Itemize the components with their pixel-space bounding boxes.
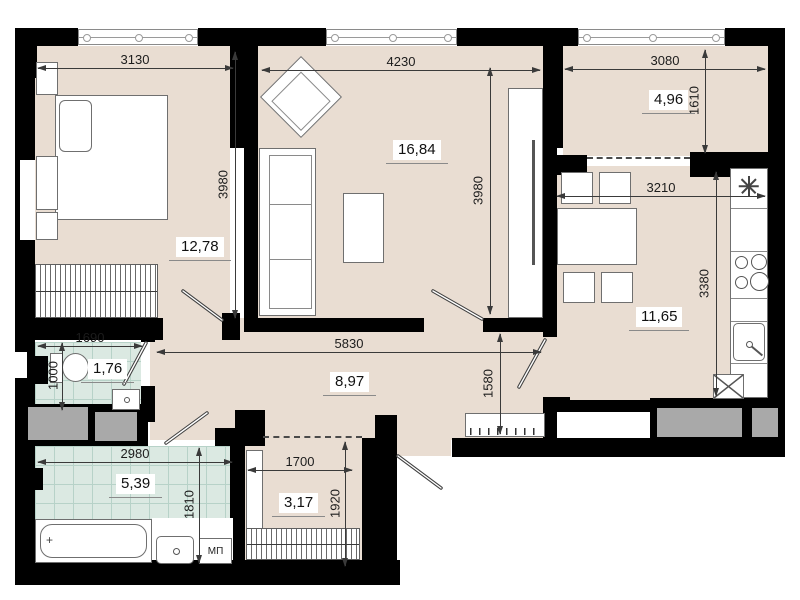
dim-line-bedroom-width	[38, 68, 233, 69]
dim-wc-depth: 1000	[46, 346, 61, 406]
dim-line-balcony-depth	[705, 50, 706, 153]
dim-living-depth: 3980	[471, 161, 486, 221]
bedroom-area-label: 12,78	[176, 237, 224, 257]
dim-entry-hall-width: 1700	[270, 454, 330, 469]
dim-line-bedroom-depth	[235, 52, 236, 318]
dim-line-living-width	[262, 70, 540, 71]
dim-line-wc-depth	[62, 343, 63, 410]
dim-bedroom-depth: 3980	[216, 155, 231, 215]
dim-line-bathroom-width	[38, 462, 232, 463]
floor-plan: + МП	[0, 0, 800, 600]
dim-hallway-width: 5830	[319, 336, 379, 351]
dim-line-living-depth	[490, 68, 491, 314]
dim-wc-width: 1690	[60, 330, 120, 345]
balcony-area-label: 4,96	[649, 90, 688, 110]
kitchen-area-label: 11,65	[636, 307, 682, 327]
wc-area-label: 1,76	[88, 359, 127, 379]
dim-bathroom-depth: 1810	[182, 475, 197, 535]
dim-line-bathroom-depth	[199, 448, 200, 563]
dim-line-entry-hall-depth	[345, 442, 346, 566]
dim-entry-hall-depth: 1920	[328, 474, 343, 534]
entry-hall-area-label: 3,17	[279, 493, 318, 513]
bathroom-area-label: 5,39	[116, 474, 155, 494]
dim-bathroom-width: 2980	[105, 446, 165, 461]
dim-line-kitchen-width	[557, 196, 765, 197]
dim-kitchen-depth: 3380	[697, 254, 712, 314]
dim-line-hallway-depth	[500, 334, 501, 434]
living-room-area-label: 16,84	[393, 140, 441, 160]
dim-living-width: 4230	[371, 54, 431, 69]
dim-bedroom-width: 3130	[105, 52, 165, 67]
dim-hallway-depth: 1580	[481, 354, 496, 414]
dim-line-balcony-width	[565, 69, 765, 70]
dim-line-entry-hall-width	[248, 470, 352, 471]
dim-line-kitchen-depth	[716, 172, 717, 396]
dim-balcony-depth: 1610	[687, 71, 702, 131]
dim-kitchen-width: 3210	[631, 180, 691, 195]
hallway-area-label: 8,97	[330, 372, 369, 392]
dim-balcony-width: 3080	[635, 53, 695, 68]
